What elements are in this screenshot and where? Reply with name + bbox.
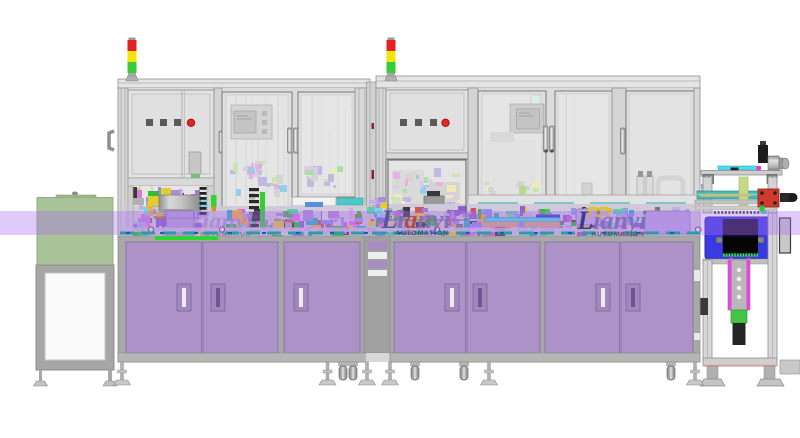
svg-text:AUTOMATION: AUTOMATION (591, 231, 644, 238)
svg-text:AUTOMATION: AUTOMATION (395, 230, 448, 237)
